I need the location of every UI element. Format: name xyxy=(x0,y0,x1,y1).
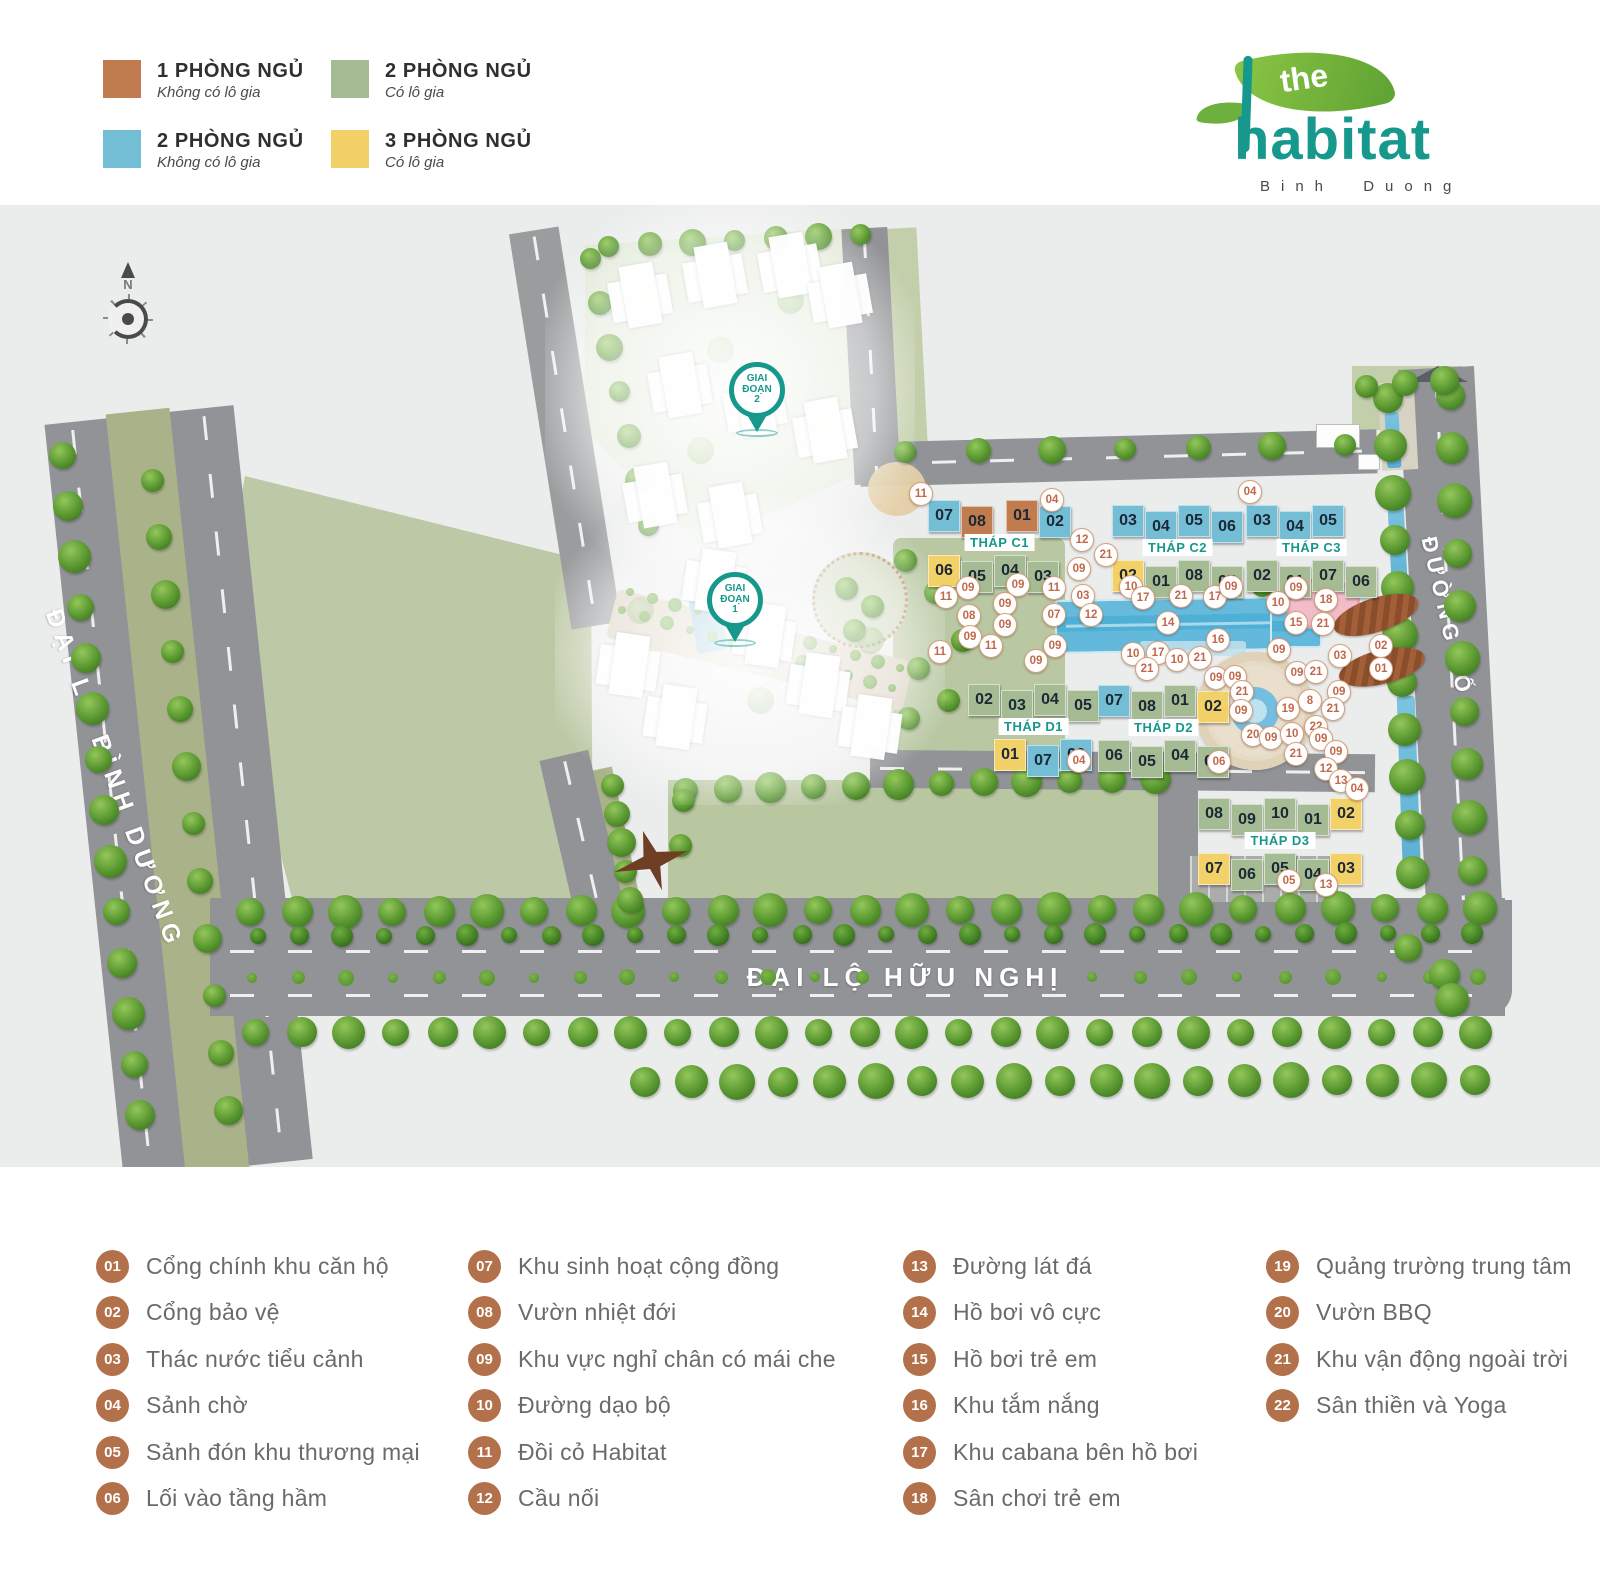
tree-icon xyxy=(1368,1019,1395,1046)
amenity-number-badge: 20 xyxy=(1266,1296,1299,1329)
unit-legend-subtitle: Không có lô gia xyxy=(157,154,304,171)
unit-block-04[interactable]: 04 xyxy=(1164,740,1196,772)
tree-icon xyxy=(1090,1064,1123,1097)
tree-icon xyxy=(601,774,624,797)
unit-block-07[interactable]: 07 xyxy=(1098,685,1130,717)
map-marker-11[interactable]: 11 xyxy=(934,585,958,609)
amenity-number-badge: 17 xyxy=(903,1436,936,1469)
unit-block-02[interactable]: 02 xyxy=(1246,560,1278,592)
tree-icon xyxy=(208,1040,234,1066)
tree-icon xyxy=(861,595,884,618)
tree-icon xyxy=(58,540,91,573)
map-marker-21[interactable]: 21 xyxy=(1304,660,1328,684)
tree-icon xyxy=(1435,983,1469,1017)
amenity-label: Khu vực nghỉ chân có mái che xyxy=(518,1346,836,1373)
faded-building xyxy=(646,355,717,421)
amenity-number-badge: 03 xyxy=(96,1343,129,1376)
unit-legend-text: 1 PHÒNG NGỦKhông có lô gia xyxy=(157,60,304,101)
tree-icon xyxy=(71,643,101,673)
tree-icon xyxy=(121,1051,148,1078)
tree-icon xyxy=(1459,1016,1492,1049)
compass-north-label: N xyxy=(96,278,160,292)
amenity-legend-column: 07Khu sinh hoạt cộng đồng08Vườn nhiệt đớ… xyxy=(468,1243,836,1522)
map-marker-12[interactable]: 12 xyxy=(1079,603,1103,627)
amenity-legend-item: 10Đường dạo bộ xyxy=(468,1383,836,1430)
tree-icon xyxy=(609,381,630,402)
map-marker-11[interactable]: 11 xyxy=(928,640,952,664)
tree-icon xyxy=(951,1065,984,1098)
amenity-label: Sân thiền và Yoga xyxy=(1316,1392,1507,1419)
map-marker-03[interactable]: 03 xyxy=(1328,644,1352,668)
tree-icon xyxy=(1444,590,1476,622)
unit-legend-text: 2 PHÒNG NGỦCó lô gia xyxy=(385,60,532,101)
tree-icon xyxy=(883,769,914,800)
amenity-label: Đồi cỏ Habitat xyxy=(518,1439,667,1466)
tree-icon xyxy=(76,692,109,725)
unit-legend-item: 2 PHÒNG NGỦCó lô gia xyxy=(331,60,532,101)
tree-icon xyxy=(842,772,870,800)
tree-icon xyxy=(141,469,164,492)
tree-icon xyxy=(707,337,734,364)
tree-icon xyxy=(719,1064,755,1100)
amenity-label: Sảnh đón khu thương mại xyxy=(146,1439,420,1466)
unit-legend-item: 3 PHÒNG NGỦCó lô gia xyxy=(331,130,532,171)
tree-icon xyxy=(1232,972,1242,982)
tree-icon xyxy=(1394,934,1422,962)
unit-block-04[interactable]: 04 xyxy=(1034,684,1066,716)
unit-color-swatch xyxy=(331,60,369,98)
tree-icon xyxy=(1322,1065,1352,1095)
tree-icon xyxy=(250,928,266,944)
tower-row: 03040506 xyxy=(1112,505,1243,543)
tree-icon xyxy=(675,1065,708,1098)
map-marker-19[interactable]: 19 xyxy=(1276,697,1300,721)
tree-icon xyxy=(520,897,548,925)
tower-label: THÁP C3 xyxy=(1276,539,1347,556)
unit-block-07[interactable]: 07 xyxy=(1027,745,1059,777)
amenity-label: Khu cabana bên hồ bơi xyxy=(953,1439,1198,1466)
tree-icon xyxy=(479,970,495,986)
unit-block-10[interactable]: 10 xyxy=(1264,798,1296,830)
map-marker-04[interactable]: 04 xyxy=(1040,488,1064,512)
tree-icon xyxy=(618,606,626,614)
tree-icon xyxy=(1470,969,1486,985)
faded-building xyxy=(641,688,710,752)
unit-block-05[interactable]: 05 xyxy=(1312,505,1344,537)
tree-icon xyxy=(1084,923,1106,945)
tree-icon xyxy=(1458,856,1487,885)
logo-the: the xyxy=(1278,57,1331,100)
tree-icon xyxy=(1045,1066,1075,1096)
tree-icon xyxy=(1460,1065,1490,1095)
amenity-label: Khu vận động ngoài trời xyxy=(1316,1346,1568,1373)
map-marker-21[interactable]: 21 xyxy=(1169,584,1193,608)
tree-icon xyxy=(627,927,643,943)
tree-icon xyxy=(112,997,145,1030)
pin-text: 1 xyxy=(732,605,738,616)
unit-block-01[interactable]: 01 xyxy=(1006,500,1038,532)
tree-icon xyxy=(850,1017,880,1047)
tree-icon xyxy=(1228,1064,1261,1097)
amenity-legend-item: 02Cổng bảo vệ xyxy=(96,1290,420,1337)
map-marker-09[interactable]: 09 xyxy=(1067,557,1091,581)
tree-icon xyxy=(1436,432,1468,464)
faded-building xyxy=(791,400,862,466)
unit-block-02[interactable]: 02 xyxy=(1330,798,1362,830)
amenity-legend-item: 15Hồ bơi trẻ em xyxy=(903,1336,1198,1383)
amenity-label: Cầu nối xyxy=(518,1485,599,1512)
amenity-label: Vườn nhiệt đới xyxy=(518,1299,676,1326)
amenity-legend-item: 12Cầu nối xyxy=(468,1476,836,1523)
tree-icon xyxy=(523,1019,550,1046)
map-marker-09[interactable]: 09 xyxy=(1284,576,1308,600)
tree-icon xyxy=(1279,971,1292,984)
amenity-number-badge: 12 xyxy=(468,1482,501,1515)
unit-block-03[interactable]: 03 xyxy=(1112,505,1144,537)
tree-icon xyxy=(247,973,257,983)
tree-icon xyxy=(660,616,674,630)
map-marker-21[interactable]: 21 xyxy=(1321,697,1345,721)
tree-icon xyxy=(382,1019,409,1046)
amenity-legend-item: 11Đồi cỏ Habitat xyxy=(468,1429,836,1476)
amenity-number-badge: 22 xyxy=(1266,1389,1299,1422)
unit-legend-title: 1 PHÒNG NGỦ xyxy=(157,60,304,82)
amenity-legend-item: 18Sân chơi trẻ em xyxy=(903,1476,1198,1523)
tree-icon xyxy=(895,893,929,927)
tree-icon xyxy=(1177,1016,1210,1049)
tree-icon xyxy=(863,675,877,689)
lane-dashes xyxy=(230,950,1495,953)
amenity-legend-item: 13Đường lát đá xyxy=(903,1243,1198,1290)
tree-icon xyxy=(937,689,960,712)
unit-block-07[interactable]: 07 xyxy=(928,500,960,532)
amenity-label: Đường lát đá xyxy=(953,1253,1092,1280)
map-marker-15[interactable]: 15 xyxy=(1284,611,1308,635)
pin-text: 2 xyxy=(754,395,760,406)
tree-icon xyxy=(378,898,406,926)
tower-row: 02010706 xyxy=(1246,560,1377,598)
amenity-label: Đường dạo bộ xyxy=(518,1392,671,1419)
unit-block-06[interactable]: 06 xyxy=(928,555,960,587)
amenity-legend: 01Cổng chính khu căn hộ02Cổng bảo vệ03Th… xyxy=(0,1167,1600,1584)
tower-label: THÁP D2 xyxy=(1128,719,1199,736)
tree-icon xyxy=(907,1066,937,1096)
logo-name: habitat xyxy=(1234,106,1431,173)
map-marker-09[interactable]: 09 xyxy=(1229,699,1253,723)
faded-building xyxy=(836,698,905,762)
amenity-legend-item: 17Khu cabana bên hồ bơi xyxy=(903,1429,1198,1476)
unit-block-06[interactable]: 06 xyxy=(1231,859,1263,891)
amenity-number-badge: 09 xyxy=(468,1343,501,1376)
amenity-legend-item: 19Quảng trường trung tâm xyxy=(1266,1243,1572,1290)
faded-building xyxy=(806,265,877,331)
tree-icon xyxy=(376,928,392,944)
unit-block-01[interactable]: 01 xyxy=(994,739,1026,771)
faded-building xyxy=(606,265,677,331)
amenity-legend-item: 14Hồ bơi vô cực xyxy=(903,1290,1198,1337)
tree-icon xyxy=(1088,895,1116,923)
tree-icon xyxy=(214,1096,243,1125)
amenity-label: Vườn BBQ xyxy=(1316,1299,1432,1326)
tree-icon xyxy=(850,224,871,245)
tower-label: THÁP D3 xyxy=(1245,832,1316,849)
tree-icon xyxy=(672,789,695,812)
tree-icon xyxy=(627,597,654,624)
tree-icon xyxy=(1463,891,1497,925)
map-marker-09[interactable]: 09 xyxy=(993,613,1017,637)
tree-icon xyxy=(1396,856,1429,889)
unit-block-08[interactable]: 08 xyxy=(1198,798,1230,830)
tree-icon xyxy=(424,896,455,927)
amenity-number-badge: 11 xyxy=(468,1436,501,1469)
unit-block-05[interactable]: 05 xyxy=(1067,690,1099,722)
map-marker-18[interactable]: 18 xyxy=(1314,588,1338,612)
tree-icon xyxy=(1452,800,1487,835)
tree-icon xyxy=(193,924,222,953)
tree-icon xyxy=(801,774,826,799)
unit-block-06[interactable]: 06 xyxy=(1345,566,1377,598)
tree-icon xyxy=(1044,925,1063,944)
unit-legend-title: 3 PHÒNG NGỦ xyxy=(385,130,532,152)
tree-icon xyxy=(664,1019,691,1046)
amenity-legend-column: 01Cổng chính khu căn hộ02Cổng bảo vệ03Th… xyxy=(96,1243,420,1522)
tree-icon xyxy=(146,524,172,550)
tree-icon xyxy=(1273,1062,1309,1098)
map-marker-16[interactable]: 16 xyxy=(1206,628,1230,652)
tree-icon xyxy=(1186,435,1211,460)
tree-icon xyxy=(856,971,869,984)
tree-icon xyxy=(1134,1063,1170,1099)
map-marker-09[interactable]: 09 xyxy=(1024,649,1048,673)
map-marker-11[interactable]: 11 xyxy=(909,482,933,506)
tree-icon xyxy=(768,1067,798,1097)
tree-icon xyxy=(793,925,812,944)
green-strip-central xyxy=(668,780,1165,902)
tree-icon xyxy=(1445,641,1480,676)
tree-icon xyxy=(596,334,623,361)
amenity-number-badge: 06 xyxy=(96,1482,129,1515)
tree-icon xyxy=(1413,1017,1443,1047)
map-marker-21[interactable]: 21 xyxy=(1094,543,1118,567)
tree-icon xyxy=(945,1019,972,1046)
tree-icon xyxy=(1036,1016,1069,1049)
tree-icon xyxy=(1421,924,1440,943)
pin-head: GIAIĐOẠN1 xyxy=(707,572,763,628)
tree-icon xyxy=(630,1067,660,1097)
map-marker-17[interactable]: 17 xyxy=(1131,586,1155,610)
tree-icon xyxy=(617,424,641,448)
tree-icon xyxy=(598,236,619,257)
tree-icon xyxy=(167,696,193,722)
tower-label: THÁP D1 xyxy=(998,718,1069,735)
tree-icon xyxy=(85,746,112,773)
amenity-label: Cổng chính khu căn hộ xyxy=(146,1253,389,1280)
unit-block-06[interactable]: 06 xyxy=(1098,740,1130,772)
tree-icon xyxy=(833,924,855,946)
map-marker-11[interactable]: 11 xyxy=(979,634,1003,658)
unit-color-swatch xyxy=(331,130,369,168)
map-marker-09[interactable]: 09 xyxy=(1267,638,1291,662)
unit-color-swatch xyxy=(103,130,141,168)
tree-icon xyxy=(857,627,884,654)
amenity-legend-item: 06Lối vào tầng hầm xyxy=(96,1476,420,1523)
map-marker-13[interactable]: 13 xyxy=(1314,873,1338,897)
map-marker-10[interactable]: 10 xyxy=(1165,648,1189,672)
faded-building xyxy=(681,245,752,311)
amenity-number-badge: 05 xyxy=(96,1436,129,1469)
map-marker-11[interactable]: 11 xyxy=(1042,576,1066,600)
tree-icon xyxy=(331,925,353,947)
tree-icon xyxy=(1255,926,1271,942)
amenity-number-badge: 01 xyxy=(96,1250,129,1283)
map-marker-8[interactable]: 8 xyxy=(1298,689,1322,713)
tree-icon xyxy=(53,491,83,521)
map-marker-04[interactable]: 04 xyxy=(1238,480,1262,504)
tree-icon xyxy=(850,895,881,926)
map-marker-21[interactable]: 21 xyxy=(1311,612,1335,636)
tree-icon xyxy=(1377,972,1387,982)
tree-icon xyxy=(103,898,130,925)
unit-block-06[interactable]: 06 xyxy=(1211,511,1243,543)
map-marker-04[interactable]: 04 xyxy=(1345,777,1369,801)
map-marker-09[interactable]: 09 xyxy=(956,576,980,600)
unit-legend-subtitle: Không có lô gia xyxy=(157,84,304,101)
amenity-number-badge: 14 xyxy=(903,1296,936,1329)
tower-label: THÁP C1 xyxy=(964,534,1035,551)
amenity-number-badge: 13 xyxy=(903,1250,936,1283)
logo-location: Binh Duong xyxy=(1260,178,1462,195)
tower-row: 030405 xyxy=(1246,505,1377,543)
tree-icon xyxy=(604,801,630,827)
faded-building xyxy=(696,485,767,551)
unit-legend-text: 2 PHÒNG NGỦKhông có lô gia xyxy=(157,130,304,171)
tree-icon xyxy=(850,650,861,661)
unit-legend-title: 2 PHÒNG NGỦ xyxy=(157,130,304,152)
map-marker-14[interactable]: 14 xyxy=(1156,611,1180,635)
tree-icon xyxy=(1395,810,1425,840)
amenity-legend-item: 08Vườn nhiệt đới xyxy=(468,1290,836,1337)
pin-head: GIAIĐOẠN2 xyxy=(729,362,785,418)
tree-icon xyxy=(125,1100,155,1130)
tree-icon xyxy=(287,1017,317,1047)
amenity-label: Khu sinh hoạt cộng đồng xyxy=(518,1253,779,1280)
map-marker-21[interactable]: 21 xyxy=(1284,742,1308,766)
tree-icon xyxy=(858,1063,894,1099)
tree-icon xyxy=(1181,969,1197,985)
amenity-label: Khu tắm nắng xyxy=(953,1392,1100,1419)
tower-row: 0809100102 xyxy=(1198,798,1362,836)
tree-icon xyxy=(813,1065,846,1098)
tree-icon xyxy=(1133,894,1164,925)
tree-icon xyxy=(959,923,981,945)
tree-icon xyxy=(1295,924,1314,943)
map-marker-12[interactable]: 12 xyxy=(1070,528,1094,552)
tree-icon xyxy=(416,926,435,945)
tree-icon xyxy=(686,626,694,634)
map-marker-21[interactable]: 21 xyxy=(1188,646,1212,670)
unit-block-02[interactable]: 02 xyxy=(1197,691,1229,723)
tree-icon xyxy=(894,441,916,463)
map-marker-05[interactable]: 05 xyxy=(1277,869,1301,893)
tree-icon xyxy=(966,438,991,463)
map-marker-02[interactable]: 02 xyxy=(1369,634,1393,658)
road-label-huu-nghi: ĐẠI LỘ HỮU NGHỊ xyxy=(655,962,1155,993)
tree-icon xyxy=(338,970,354,986)
tree-icon xyxy=(1038,436,1066,464)
tree-icon xyxy=(1129,926,1145,942)
phase-pin-2[interactable]: GIAIĐOẠN2 xyxy=(727,362,787,437)
tree-icon xyxy=(1258,432,1286,460)
tree-icon xyxy=(1374,429,1407,462)
compass-rose-icon xyxy=(103,294,153,344)
unit-block-03[interactable]: 03 xyxy=(1246,505,1278,537)
unit-legend-item: 2 PHÒNG NGỦKhông có lô gia xyxy=(103,130,304,171)
tree-icon xyxy=(582,924,604,946)
amenity-number-badge: 21 xyxy=(1266,1343,1299,1376)
unit-block-05[interactable]: 05 xyxy=(1178,505,1210,537)
phase-pin-1[interactable]: GIAIĐOẠN1 xyxy=(705,572,765,647)
north-arrow-icon xyxy=(121,262,135,278)
tree-icon xyxy=(1210,923,1232,945)
tree-icon xyxy=(687,437,714,464)
map-marker-06[interactable]: 06 xyxy=(1207,750,1231,774)
amenity-legend-item: 21Khu vận động ngoài trời xyxy=(1266,1336,1572,1383)
tree-icon xyxy=(1366,1064,1399,1097)
tree-icon xyxy=(203,984,226,1007)
map-marker-21[interactable]: 21 xyxy=(1135,657,1159,681)
tree-icon xyxy=(566,895,597,926)
tower-row: 07080102 xyxy=(1098,685,1229,723)
map-marker-04[interactable]: 04 xyxy=(1067,749,1091,773)
tree-icon xyxy=(907,657,930,680)
tree-icon xyxy=(1087,972,1097,982)
amenity-label: Hồ bơi vô cực xyxy=(953,1299,1101,1326)
unit-legend-subtitle: Có lô gia xyxy=(385,84,532,101)
tree-icon xyxy=(1004,926,1020,942)
tree-icon xyxy=(747,687,774,714)
tree-icon xyxy=(752,927,768,943)
tree-icon xyxy=(1132,1017,1162,1047)
unit-block-07[interactable]: 07 xyxy=(1198,853,1230,885)
amenity-number-badge: 07 xyxy=(468,1250,501,1283)
map-marker-09[interactable]: 09 xyxy=(1259,726,1283,750)
tree-icon xyxy=(328,895,362,929)
unit-block-02[interactable]: 02 xyxy=(968,684,1000,716)
unit-block-05[interactable]: 05 xyxy=(1131,746,1163,778)
tree-icon xyxy=(662,897,690,925)
map-marker-07[interactable]: 07 xyxy=(1042,603,1066,627)
tree-icon xyxy=(1334,434,1356,456)
tree-icon xyxy=(172,752,201,781)
tree-icon xyxy=(715,971,728,984)
tree-icon xyxy=(829,645,837,653)
tree-icon xyxy=(107,948,137,978)
map-marker-01[interactable]: 01 xyxy=(1369,657,1393,681)
tree-icon xyxy=(574,971,587,984)
unit-block-01[interactable]: 01 xyxy=(1164,685,1196,717)
tree-icon xyxy=(708,895,739,926)
tree-icon xyxy=(1134,971,1147,984)
map-marker-09[interactable]: 09 xyxy=(1219,575,1243,599)
tree-icon xyxy=(332,1016,365,1049)
tree-icon xyxy=(1318,1016,1351,1049)
tree-icon xyxy=(895,1016,928,1049)
habitat-logo: the habitat Binh Duong xyxy=(1196,34,1496,194)
tree-icon xyxy=(614,1016,647,1049)
amenity-label: Cổng bảo vệ xyxy=(146,1299,280,1326)
tree-icon xyxy=(918,925,937,944)
tower-row: 02030405 xyxy=(968,684,1099,722)
